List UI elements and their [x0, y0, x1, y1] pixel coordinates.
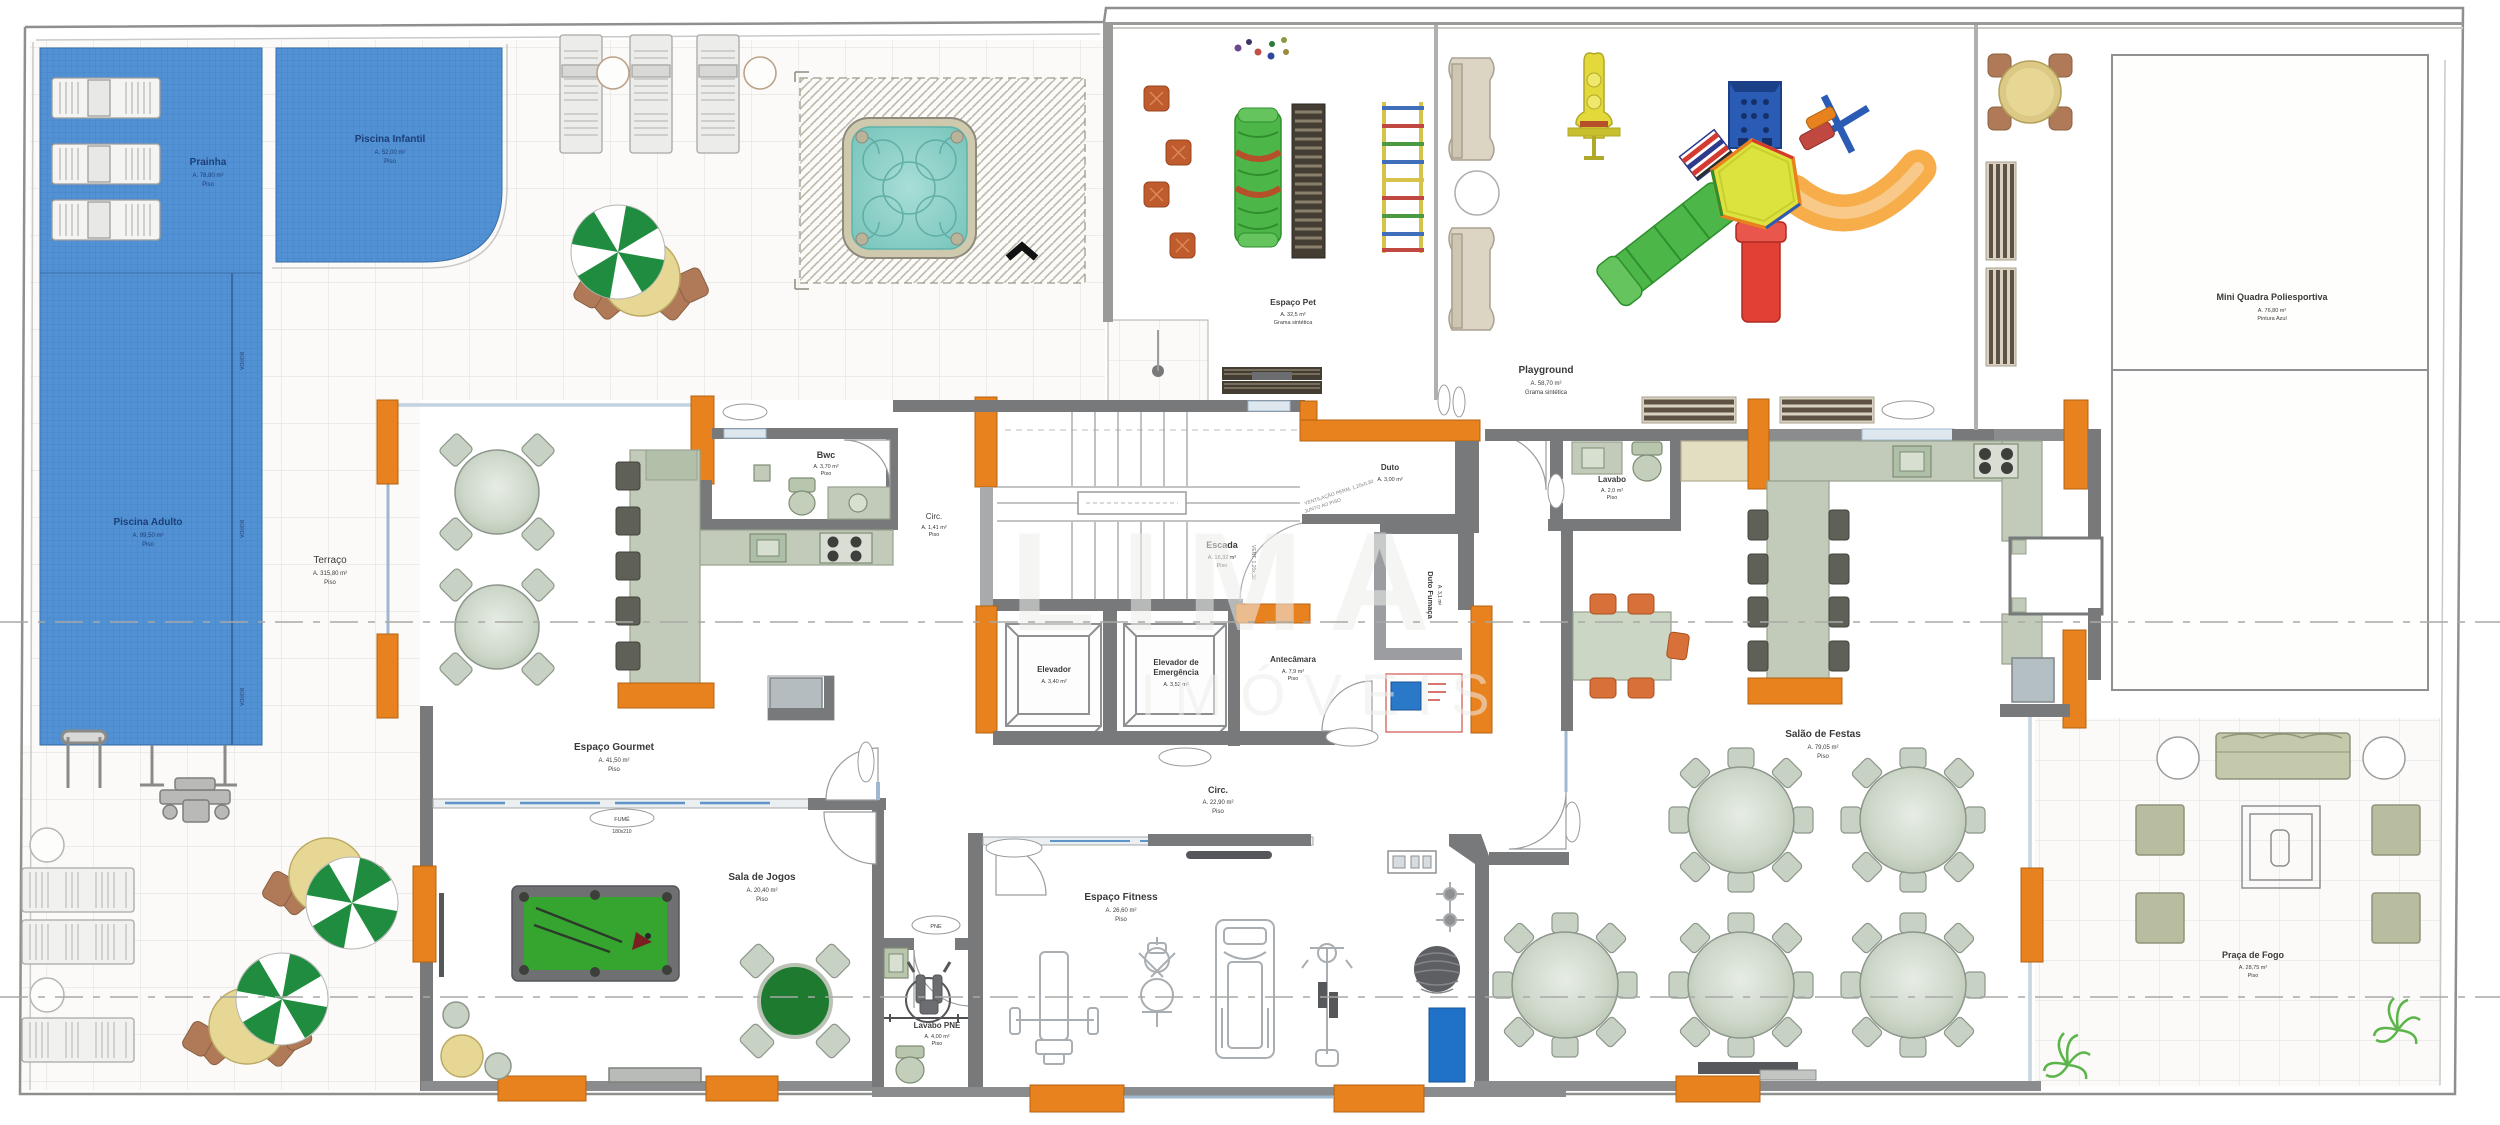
svg-text:Piso: Piso: [1212, 809, 1224, 815]
svg-text:Praça de Fogo: Praça de Fogo: [2222, 950, 2285, 960]
svg-text:Playground: Playground: [1518, 365, 1573, 376]
svg-text:A. 3,40 m²: A. 3,40 m²: [1041, 679, 1067, 685]
svg-text:A. 41,50 m²: A. 41,50 m²: [598, 758, 629, 764]
svg-text:BORDA: BORDA: [238, 352, 244, 370]
svg-text:A. 315,80 m²: A. 315,80 m²: [313, 571, 347, 577]
svg-text:Piso: Piso: [2248, 973, 2259, 979]
svg-text:Grama sintética: Grama sintética: [1525, 390, 1568, 396]
svg-text:Lavabo PNE: Lavabo PNE: [914, 1021, 961, 1030]
svg-text:A. 22,90 m²: A. 22,90 m²: [1202, 800, 1233, 806]
svg-text:A. 2,0 m²: A. 2,0 m²: [1601, 488, 1623, 494]
svg-text:Circ.: Circ.: [926, 512, 942, 521]
svg-text:Piso: Piso: [1817, 754, 1829, 760]
svg-text:BORDA: BORDA: [238, 688, 244, 706]
svg-text:A. 79,05 m²: A. 79,05 m²: [1807, 745, 1838, 751]
svg-text:Lavabo: Lavabo: [1598, 475, 1626, 484]
svg-text:A. 3,70 m²: A. 3,70 m²: [813, 464, 839, 470]
svg-text:LIMA: LIMA: [1010, 503, 1456, 660]
svg-text:Piso: Piso: [1607, 495, 1618, 501]
svg-text:Piso: Piso: [1115, 917, 1127, 923]
svg-text:Duto: Duto: [1381, 463, 1399, 472]
svg-text:A. 58,70 m²: A. 58,70 m²: [1530, 381, 1561, 387]
svg-text:Piso: Piso: [384, 159, 396, 165]
svg-text:Sala de Jogos: Sala de Jogos: [728, 872, 796, 883]
svg-text:A. 99,50 m²: A. 99,50 m²: [132, 533, 163, 539]
svg-text:Piso: Piso: [202, 182, 214, 188]
svg-text:Bwc: Bwc: [817, 450, 836, 460]
svg-text:A. 4,00 m²: A. 4,00 m²: [924, 1034, 950, 1040]
svg-text:A. 78,80 m²: A. 78,80 m²: [192, 173, 223, 179]
svg-text:Pintura Azul: Pintura Azul: [2257, 316, 2286, 322]
svg-text:Espaço Pet: Espaço Pet: [1270, 297, 1316, 307]
svg-text:Terraço: Terraço: [313, 555, 347, 566]
svg-text:Grama sintética: Grama sintética: [1274, 320, 1313, 326]
svg-text:Piscina Adulto: Piscina Adulto: [113, 517, 182, 528]
svg-text:PNE: PNE: [930, 924, 942, 930]
svg-text:Circ.: Circ.: [1208, 785, 1228, 795]
svg-text:Espaço Gourmet: Espaço Gourmet: [574, 742, 655, 753]
svg-text:IMÓVEIS: IMÓVEIS: [1140, 663, 1508, 728]
svg-text:Espaço Fitness: Espaço Fitness: [1084, 892, 1158, 903]
svg-text:Salão de Festas: Salão de Festas: [1785, 729, 1861, 740]
svg-text:A. 26,60 m²: A. 26,60 m²: [1105, 908, 1136, 914]
svg-text:A. 1,41 m²: A. 1,41 m²: [921, 525, 947, 531]
svg-text:A. 3,00 m²: A. 3,00 m²: [1377, 477, 1403, 483]
svg-text:FUMÊ: FUMÊ: [614, 815, 630, 823]
svg-text:Piso: Piso: [932, 1041, 943, 1047]
svg-text:Piso: Piso: [756, 897, 768, 903]
svg-text:Prainha: Prainha: [190, 157, 227, 168]
svg-text:Mini Quadra Poliesportiva: Mini Quadra Poliesportiva: [2216, 292, 2328, 302]
svg-text:A. 28,75 m²: A. 28,75 m²: [2239, 965, 2268, 971]
svg-text:A. 76,80 m²: A. 76,80 m²: [2258, 308, 2287, 314]
svg-text:A. 52,00 m²: A. 52,00 m²: [374, 150, 405, 156]
svg-text:Piso: Piso: [608, 767, 620, 773]
svg-text:Piso: Piso: [324, 580, 336, 586]
svg-text:A. 20,40 m²: A. 20,40 m²: [746, 888, 777, 894]
svg-text:180x210: 180x210: [612, 829, 631, 835]
svg-text:Piscina Infantil: Piscina Infantil: [355, 134, 426, 145]
svg-text:Piso: Piso: [821, 471, 832, 477]
svg-text:BORDA: BORDA: [238, 520, 244, 538]
svg-text:Elevador: Elevador: [1037, 665, 1071, 674]
svg-text:Piso: Piso: [929, 532, 940, 538]
svg-text:A. 32,5 m²: A. 32,5 m²: [1280, 312, 1306, 318]
svg-text:Piso: Piso: [142, 542, 154, 548]
